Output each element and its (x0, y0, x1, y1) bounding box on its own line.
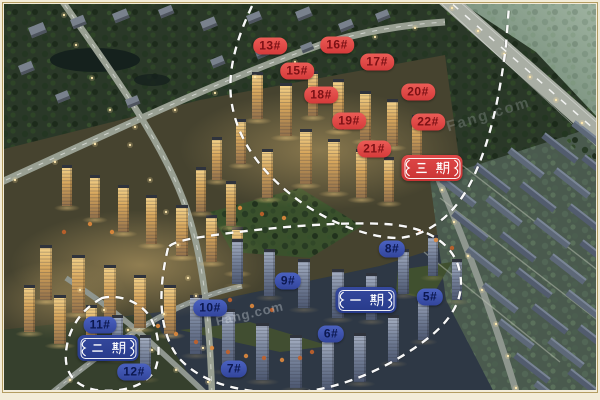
building-label-19: 19# (332, 113, 366, 130)
badge-text-phase-3 (411, 161, 454, 175)
glyph-qi (112, 341, 126, 355)
badge-text-phase-1 (345, 293, 388, 307)
glyph-er (91, 341, 105, 355)
badge-ornament-right-icon (454, 159, 461, 177)
building-label-12: 12# (117, 364, 151, 381)
building-label-10: 10# (193, 300, 227, 317)
badge-ornament-right-icon (130, 339, 137, 357)
badge-text-phase-2 (87, 341, 130, 355)
building-label-9: 9# (275, 273, 301, 290)
badge-ornament-left-icon (404, 159, 411, 177)
frame-border-top (0, 0, 600, 4)
phase-2-badge (78, 335, 139, 361)
phase-1-badge (336, 287, 397, 313)
frame-border-bottom (0, 390, 600, 400)
badge-ornament-left-icon (338, 291, 345, 309)
glyph-qi (436, 161, 450, 175)
phase-3-badge (402, 155, 463, 181)
building-label-13: 13# (253, 38, 287, 55)
building-label-21: 21# (357, 141, 391, 158)
building-label-5: 5# (417, 289, 443, 306)
badge-ornament-left-icon (80, 339, 87, 357)
building-label-11: 11# (84, 317, 117, 334)
glyph-san (415, 161, 429, 175)
glyph-yi (349, 293, 363, 307)
building-label-16: 16# (320, 37, 354, 54)
building-label-15: 15# (280, 63, 314, 80)
building-label-7: 7# (221, 361, 247, 378)
building-label-17: 17# (360, 54, 394, 71)
building-label-20: 20# (401, 84, 435, 101)
building-label-22: 22# (411, 114, 445, 131)
building-label-8: 8# (379, 241, 405, 258)
building-label-6: 6# (318, 326, 344, 343)
glyph-qi (370, 293, 384, 307)
frame-border-left (0, 0, 4, 400)
building-label-18: 18# (304, 87, 338, 104)
badge-ornament-right-icon (388, 291, 395, 309)
frame-border-right (596, 0, 600, 400)
masterplan-image: Fang.com Fang.com 13#16#15#17#18#20#19#2… (0, 0, 600, 400)
